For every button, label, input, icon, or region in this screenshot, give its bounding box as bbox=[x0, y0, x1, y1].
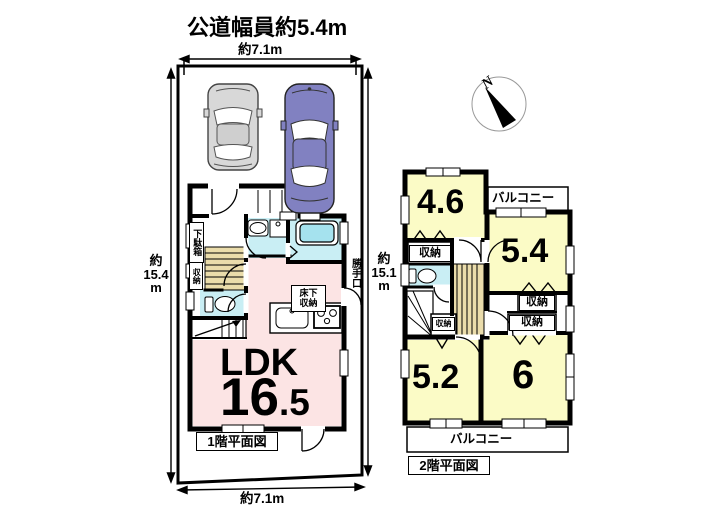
ldk-size: 16.5 bbox=[220, 370, 310, 426]
floor1-stairs bbox=[205, 247, 246, 290]
room-5-2-size: 5.2 bbox=[412, 360, 459, 396]
room-6-size: 6 bbox=[512, 354, 534, 396]
left-depth-dimension: 約 15.4 m bbox=[138, 254, 174, 295]
balcony-bottom-label: バルコニー bbox=[450, 433, 512, 446]
closet-label-5-2: 収納 bbox=[432, 317, 455, 331]
bathtub bbox=[296, 221, 338, 245]
storage-label-1f: 収納 bbox=[189, 262, 203, 290]
shoe-cabinet-label: 下駄箱 bbox=[189, 222, 204, 263]
closet-label-6: 収納 bbox=[509, 315, 555, 331]
car-gray bbox=[204, 84, 262, 170]
right-depth-dimension: 約 15.1 m bbox=[368, 252, 400, 293]
closet-label-5-4: 収納 bbox=[519, 295, 555, 311]
floor2-caption: 2階平面図 bbox=[408, 456, 490, 475]
underfloor-storage-label: 床下 収納 bbox=[291, 285, 326, 312]
balcony-top-label: バルコニー bbox=[492, 192, 554, 205]
room-5-4-size: 5.4 bbox=[501, 234, 548, 270]
floorplan-page: 公道幅員約5.4m 約7.1m 約7.1m 約 15.4 m 約 15.1 m … bbox=[0, 0, 705, 525]
room-4-6-size: 4.6 bbox=[417, 185, 464, 221]
car-blue bbox=[281, 84, 338, 213]
back-door-label: 勝手口 bbox=[349, 258, 360, 288]
closet-label-4-6: 収納 bbox=[409, 245, 451, 262]
toilet-1f bbox=[205, 297, 235, 313]
washroom-fixtures bbox=[248, 220, 287, 237]
top-width-dimension: 約7.1m bbox=[238, 43, 282, 57]
floor1-stair-arrow bbox=[191, 318, 246, 338]
toilet-2f bbox=[409, 269, 436, 283]
compass bbox=[472, 77, 526, 131]
road-width-title: 公道幅員約5.4m bbox=[187, 16, 347, 39]
bottom-width-dimension: 約7.1m bbox=[240, 492, 284, 506]
floor1-caption: 1階平面図 bbox=[196, 432, 278, 451]
